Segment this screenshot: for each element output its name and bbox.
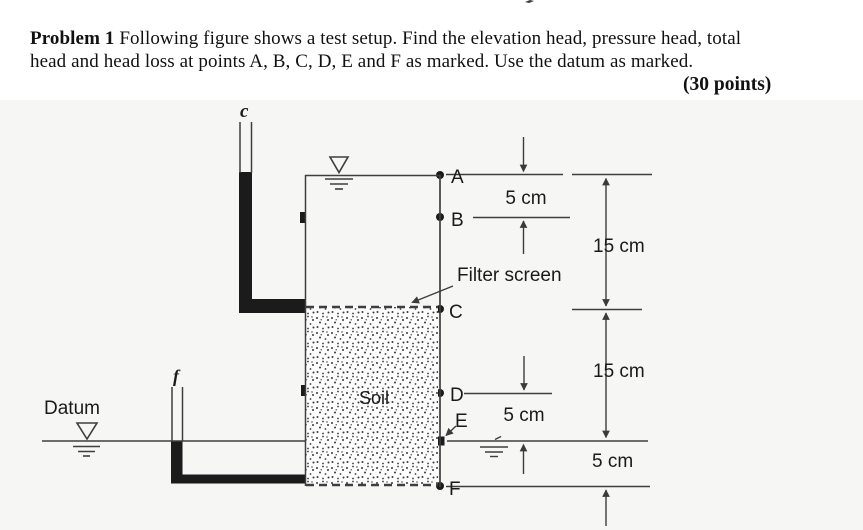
test-setup-figure: c f Datum Soil Filter screen A B C D E F… — [0, 0, 863, 530]
dimension-d-e: 5 cm — [503, 405, 544, 426]
point-e-label: E — [455, 411, 468, 432]
filter-screen-label: Filter screen — [457, 265, 562, 286]
standpipe-c-label: c — [240, 101, 249, 122]
cutoff-text-fragment — [525, 0, 534, 3]
point-f-label: F — [449, 479, 461, 500]
dimension-c-e: 15 cm — [593, 361, 645, 382]
soil-label: Soil — [359, 388, 389, 408]
point-b-label: B — [451, 210, 464, 231]
dimension-a-b: 5 cm — [505, 188, 546, 209]
dimension-e-f: 5 cm — [592, 451, 633, 472]
standpipe-f-horizontal-arm — [171, 475, 306, 484]
point-a-label: A — [451, 167, 464, 188]
dimension-a-c: 15 cm — [593, 236, 645, 257]
point-d-label: D — [450, 385, 464, 406]
standpipe-c-water-column — [239, 172, 252, 302]
left-wall-tick-b-level — [300, 212, 305, 223]
datum-label: Datum — [44, 398, 100, 419]
point-c-label: C — [449, 302, 463, 323]
standpipe-c-horizontal-arm — [239, 299, 306, 313]
